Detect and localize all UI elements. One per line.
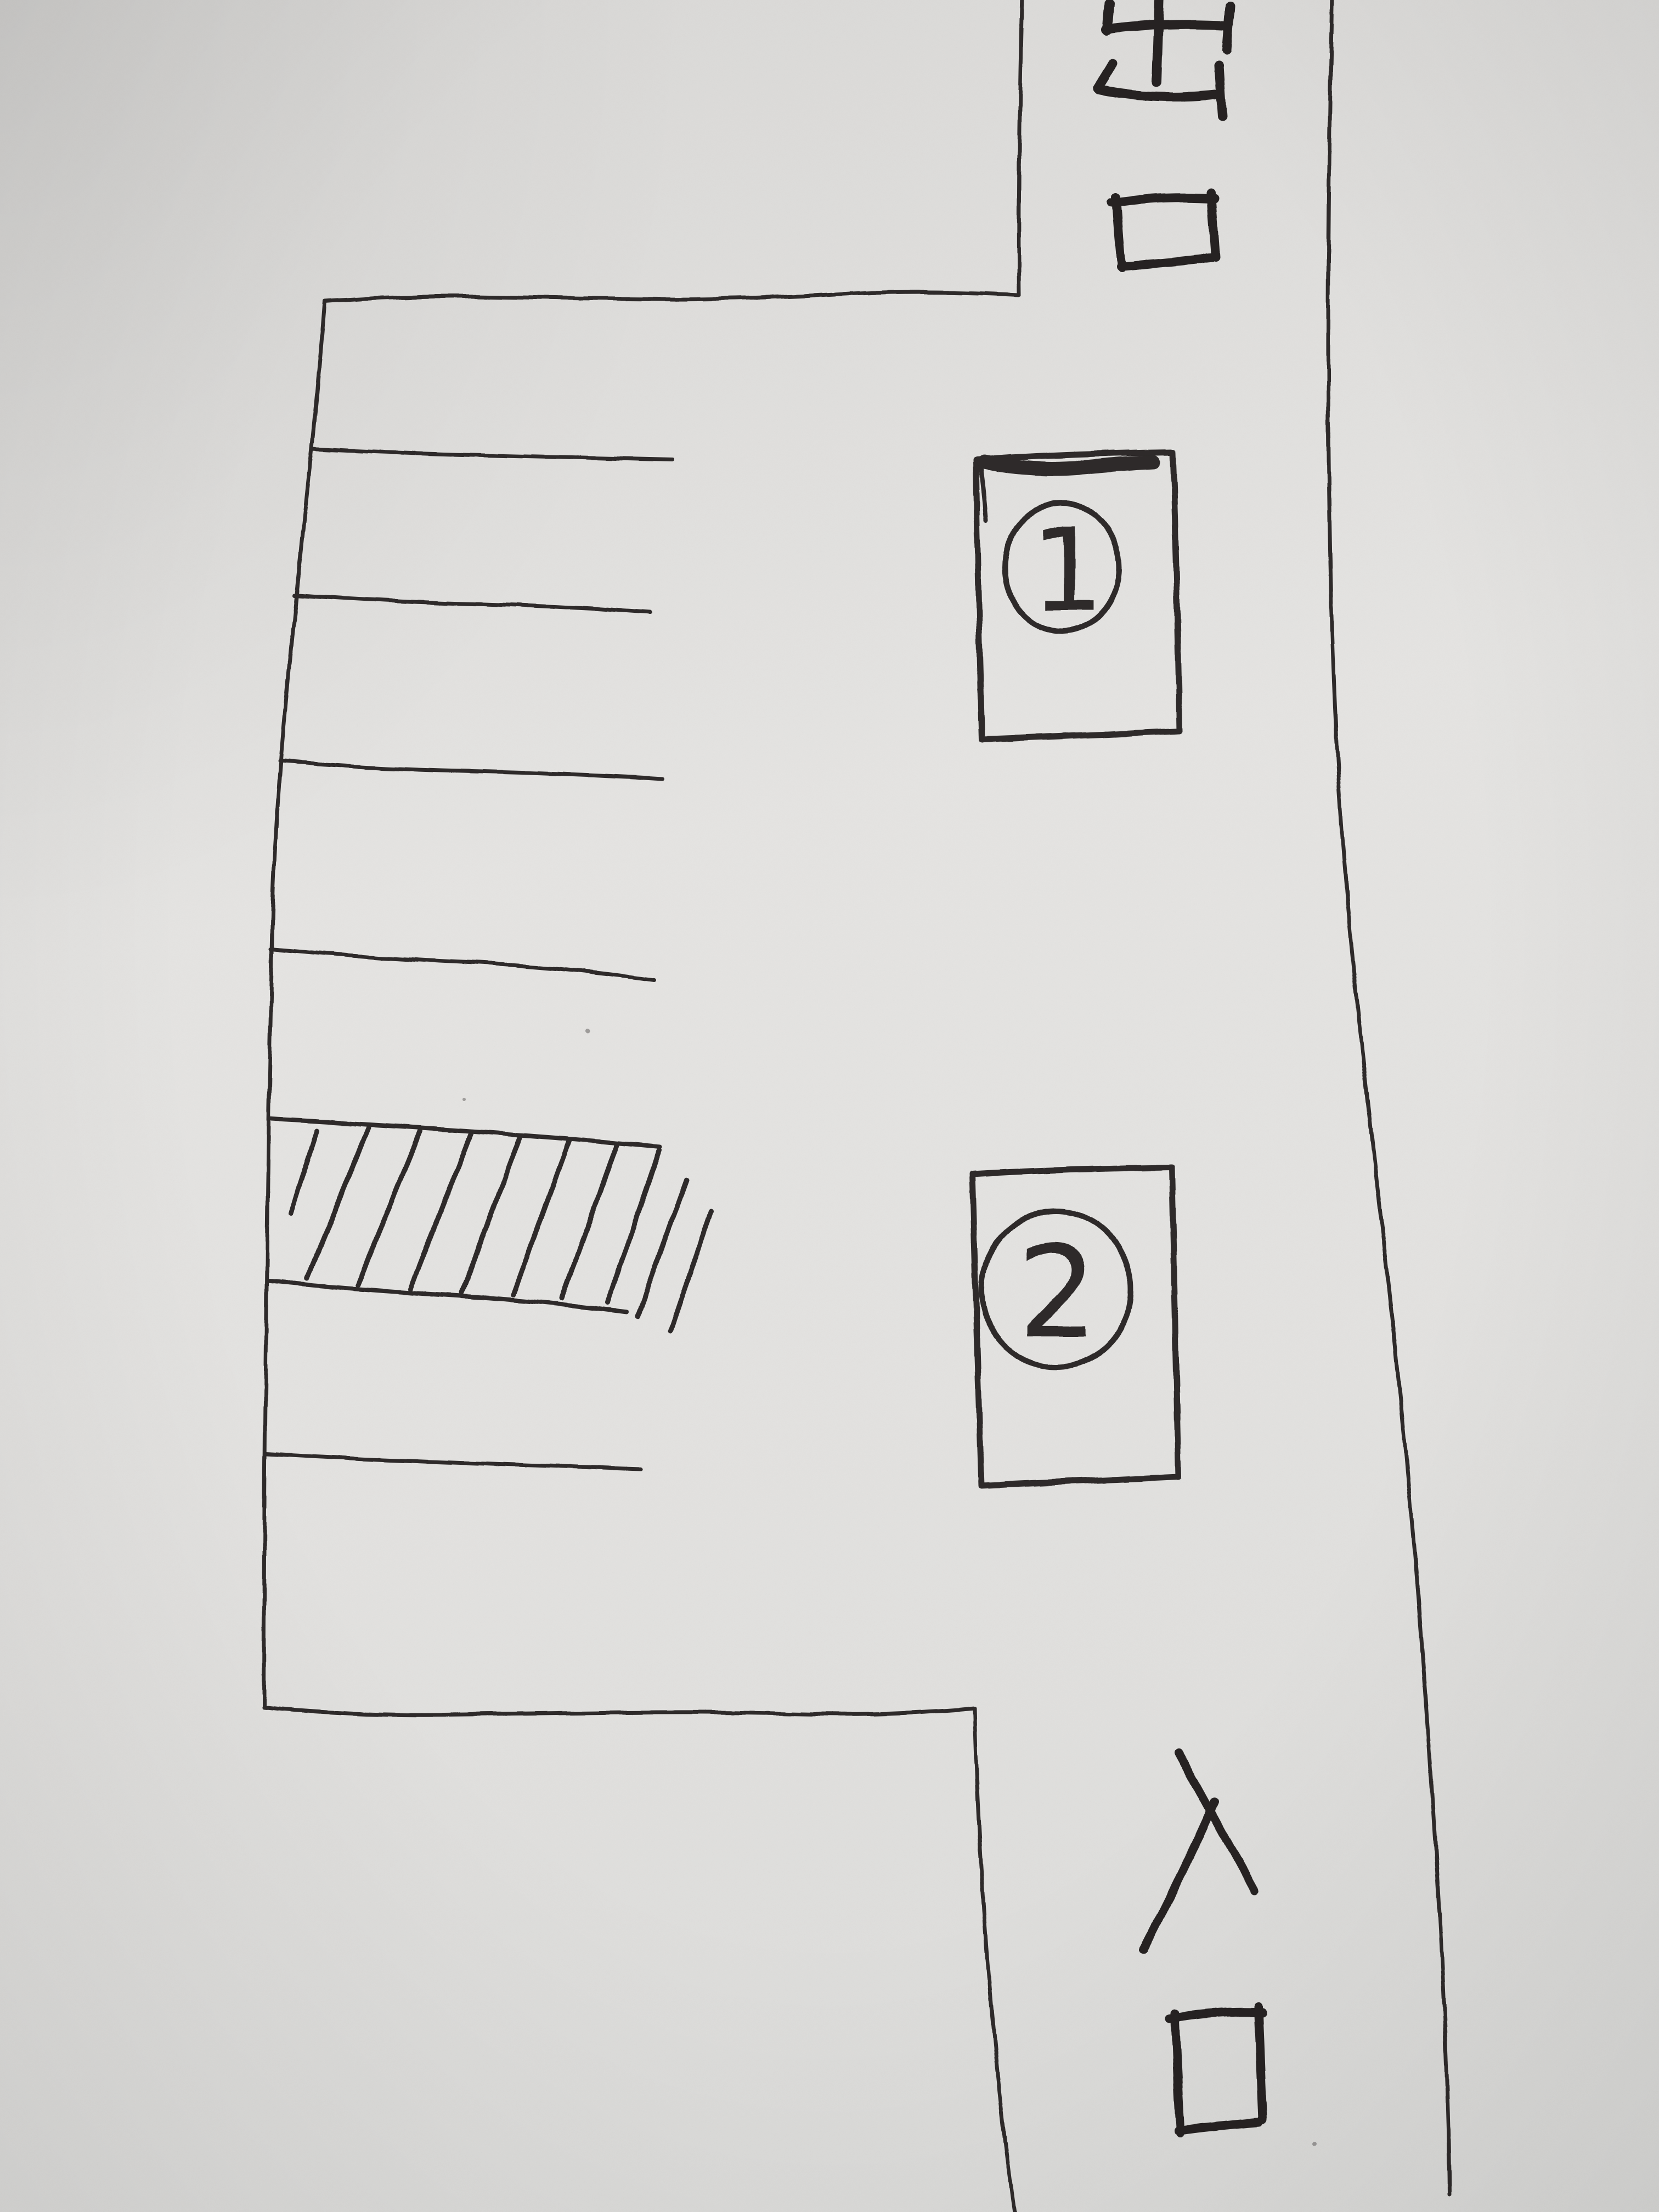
- kanji-stroke: [1157, 0, 1160, 82]
- marker-1-number: 1: [1031, 503, 1104, 637]
- ink-speck: [585, 1028, 589, 1032]
- marker-2-number: 2: [1018, 1220, 1098, 1367]
- kanji-stroke: [1175, 2013, 1181, 2133]
- kanji-stroke: [1106, 24, 1228, 30]
- parking-map-sketch: 1 2: [0, 0, 1659, 2212]
- ink-speck: [462, 1098, 466, 1101]
- photo-of-sketch: 1 2: [0, 0, 1659, 2212]
- kanji-stroke: [1259, 2007, 1263, 2120]
- kanji-stroke: [1211, 193, 1216, 258]
- paper-grain-texture: [0, 0, 1659, 2212]
- kanji-stroke: [1116, 198, 1121, 268]
- marker-1-thick-top-mark: [984, 462, 1153, 469]
- ink-speck: [1312, 2141, 1317, 2146]
- kanji-stroke: [1227, 5, 1230, 50]
- kanji-stroke: [1219, 66, 1222, 116]
- kanji-stroke: [1111, 198, 1215, 203]
